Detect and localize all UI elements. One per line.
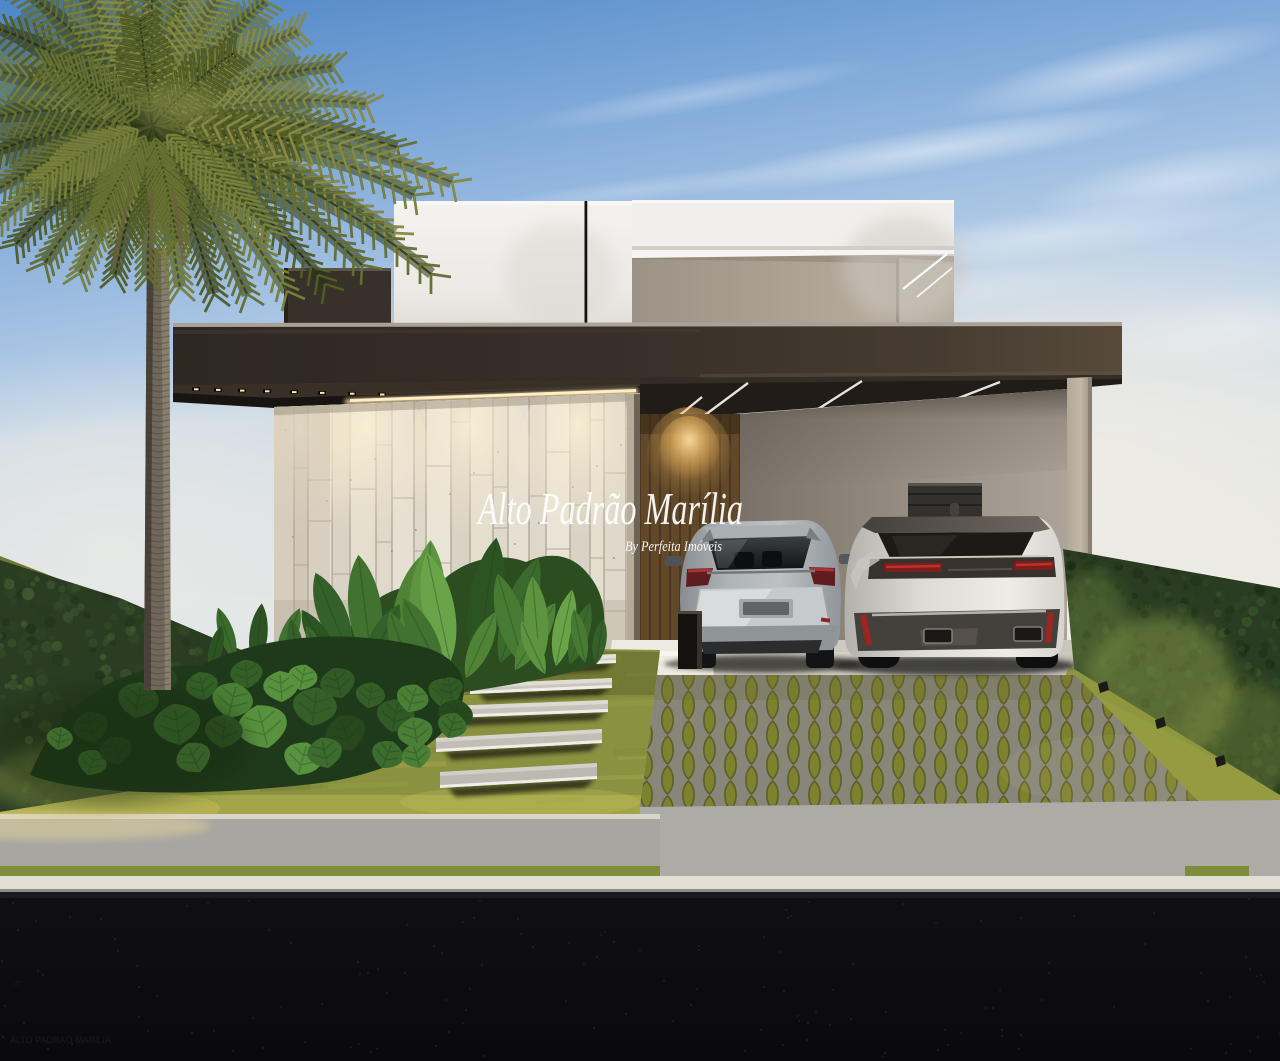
svg-text:ALTO PADRAO MARILIA: ALTO PADRAO MARILIA <box>10 1035 111 1045</box>
svg-text:Alto Padrão Marília: Alto Padrão Marília <box>476 483 743 534</box>
svg-text:By Perfeita Imóveis: By Perfeita Imóveis <box>625 539 722 555</box>
